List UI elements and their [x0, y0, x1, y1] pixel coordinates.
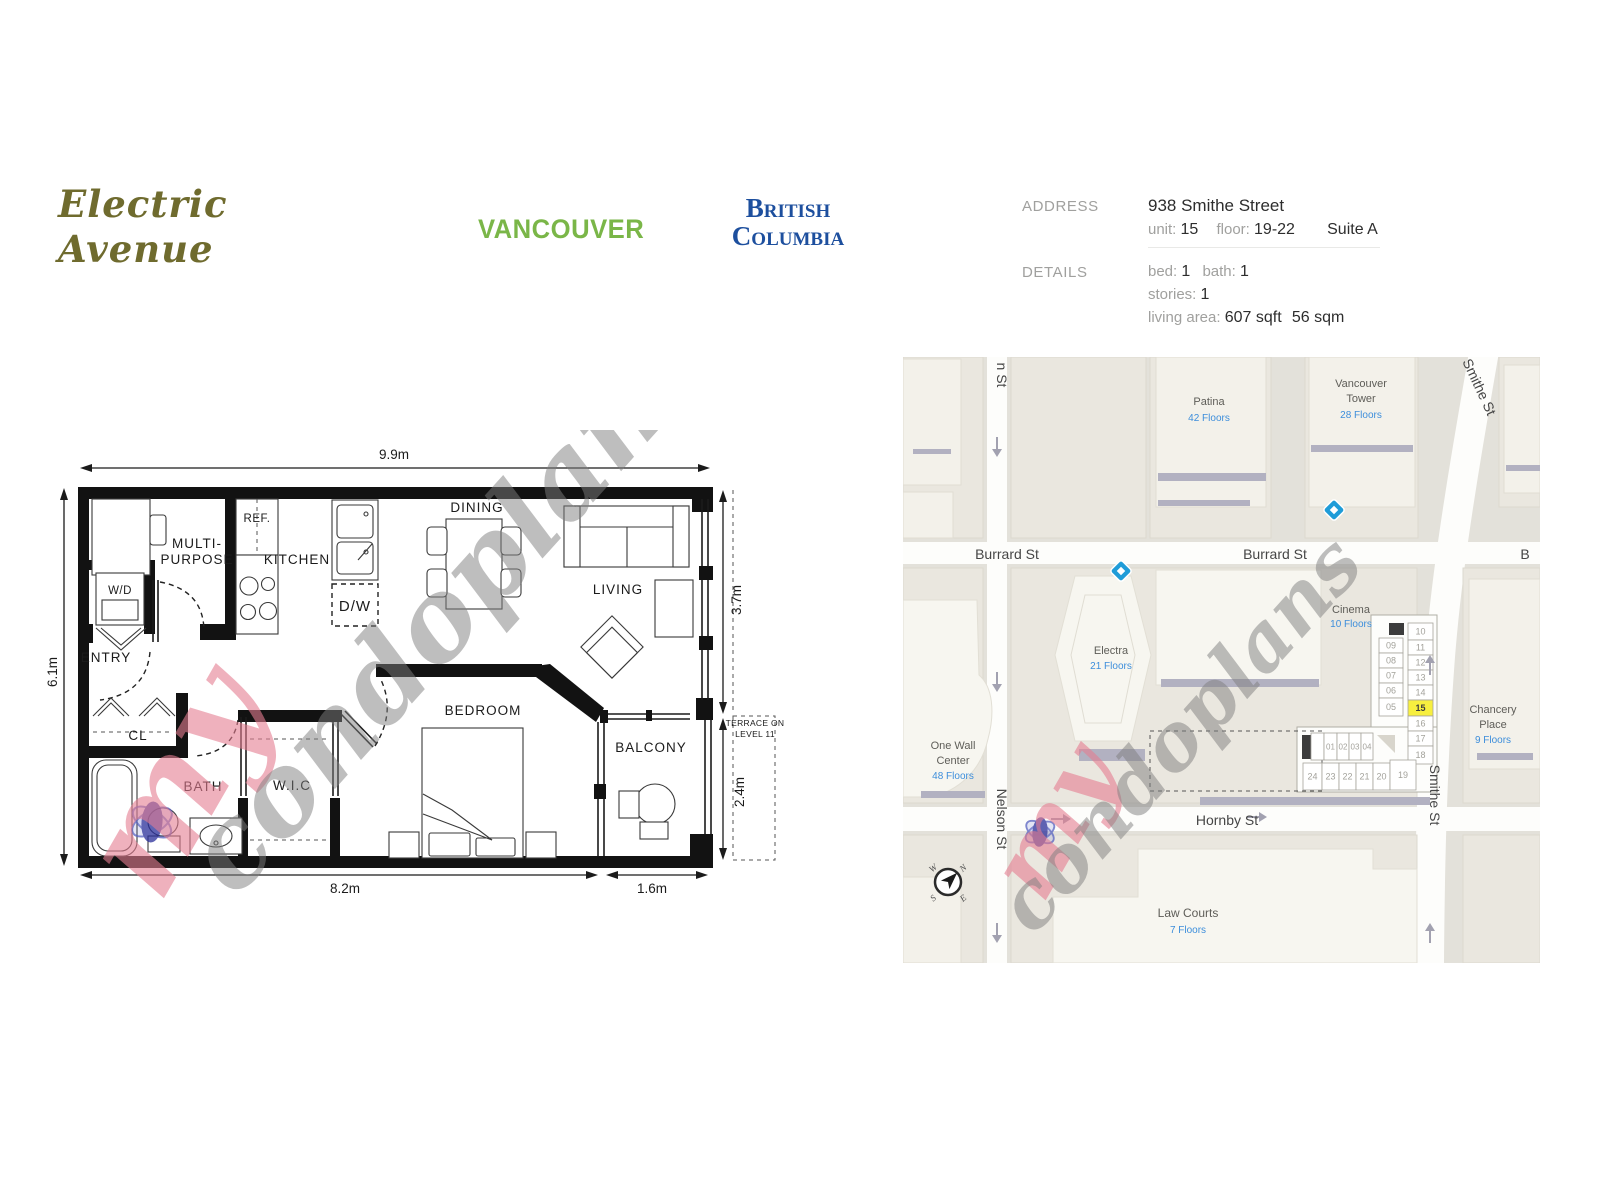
address-label: ADDRESS: [1022, 196, 1148, 248]
site-map: 1011121314151617180908070605010203042423…: [903, 357, 1540, 963]
desk: [92, 499, 150, 575]
unit-floor-line: unit: 15 floor: 19-22 Suite A: [1148, 220, 1380, 239]
unit-number-02: 02: [1339, 743, 1348, 752]
unit-number-03: 03: [1351, 743, 1360, 752]
patio-chair: [619, 791, 639, 818]
unit-number-13: 13: [1415, 673, 1425, 683]
province-line1: British: [718, 194, 858, 222]
label-multi-1: MULTI-: [172, 536, 222, 551]
unit-number-04: 04: [1363, 743, 1372, 752]
one-wall-center-floors: 48 Floors: [932, 771, 974, 782]
province-label: British Columbia: [718, 194, 858, 251]
floor-value: 19-22: [1254, 221, 1295, 238]
law-courts-floors: 7 Floors: [1170, 925, 1206, 936]
project-title: Electric Avenue: [58, 182, 228, 272]
dim-bottom-balcony: 1.6m: [637, 881, 667, 896]
dim-left: 6.1m: [45, 657, 60, 687]
floor-plan: 9.9m 6.1m 3.7m 2.4m 8.2m 1.6m TERRACE ON…: [40, 430, 800, 910]
terrace-note-line2: LEVEL 11: [735, 729, 775, 739]
divider: [1148, 247, 1380, 248]
dim-right-upper: 3.7m: [729, 585, 744, 615]
unit-number-17: 17: [1415, 734, 1425, 744]
unit-number-08: 08: [1386, 656, 1396, 666]
chancery-place-floors: 9 Floors: [1475, 735, 1511, 746]
stories-line: stories: 1: [1148, 285, 1344, 304]
province-line2: Columbia: [718, 222, 858, 250]
project-title-line1: Electric: [58, 182, 228, 227]
street-burrard-partial: B: [1520, 546, 1529, 562]
unit-number-18: 18: [1415, 750, 1425, 760]
vancouver-tower-floors: 28 Floors: [1340, 410, 1382, 421]
terrace-note-line1: TERRACE ON: [726, 718, 785, 728]
street-burrard-1: Burrard St: [975, 546, 1039, 562]
bed-key: bed:: [1148, 263, 1177, 280]
electra-name: Electra: [1094, 645, 1129, 657]
floor-key: floor:: [1217, 221, 1250, 238]
condo-plan-sheet: Electric Avenue VANCOUVER British Columb…: [0, 0, 1600, 1200]
unit-number-11: 11: [1416, 643, 1425, 653]
vancouver-tower-name-2: Tower: [1346, 393, 1376, 405]
one-wall-center-name-2: Center: [936, 755, 969, 767]
one-wall-center-name-1: One Wall: [931, 740, 976, 752]
unit-number-06: 06: [1386, 686, 1396, 696]
stories-key: stories:: [1148, 286, 1196, 303]
unit-number-16: 16: [1415, 719, 1425, 729]
unit-number-10: 10: [1415, 627, 1425, 637]
unit-number-12: 12: [1415, 658, 1425, 668]
area-line: living area: 607 sqft 56 sqm: [1148, 308, 1344, 327]
unit-number-20: 20: [1376, 772, 1386, 782]
area-sqft: 607 sqft: [1225, 309, 1282, 326]
street-nelson-partial: n St: [994, 363, 1010, 388]
bed-bath-line: bed: 1 bath: 1: [1148, 262, 1344, 281]
bath-key: bath:: [1202, 263, 1235, 280]
nightstand: [526, 832, 556, 858]
dim-bottom-main: 8.2m: [330, 881, 360, 896]
unit-number-24: 24: [1307, 772, 1317, 782]
unit-key: unit:: [1148, 221, 1176, 238]
dim-top: 9.9m: [379, 447, 409, 462]
unit-number-22: 22: [1342, 772, 1352, 782]
patio-table: [635, 784, 675, 824]
label-living: LIVING: [593, 582, 643, 597]
chancery-place-name-1: Chancery: [1469, 704, 1517, 716]
bath-value: 1: [1240, 263, 1249, 280]
patina-name: Patina: [1193, 396, 1225, 408]
kitchen-island: [332, 500, 378, 580]
unit-number-14: 14: [1415, 688, 1425, 698]
city-label: VANCOUVER: [478, 214, 644, 245]
suite-value: Suite A: [1327, 221, 1378, 238]
law-courts-name: Law Courts: [1158, 906, 1219, 920]
dim-right-lower: 2.4m: [732, 777, 747, 807]
unit-number-15: 15: [1415, 703, 1425, 713]
info-panel: ADDRESS 938 Smithe Street unit: 15 floor…: [1022, 196, 1380, 341]
address-value: 938 Smithe Street: [1148, 196, 1380, 216]
electra-floors: 21 Floors: [1090, 661, 1132, 672]
side-table: [655, 580, 693, 637]
details-label: DETAILS: [1022, 262, 1148, 327]
street-hornby: Hornby St: [1196, 812, 1258, 828]
nightstand: [389, 832, 419, 858]
bed-value: 1: [1181, 263, 1190, 280]
unit-number-05: 05: [1386, 702, 1396, 712]
street-smithe-right: Smithe St: [1427, 765, 1443, 826]
label-entry: ENTRY: [81, 650, 132, 665]
unit-number-09: 09: [1386, 641, 1396, 651]
pillow: [429, 833, 470, 856]
stories-value: 1: [1201, 286, 1210, 303]
label-balcony: BALCONY: [615, 740, 687, 755]
unit-number-01: 01: [1326, 743, 1335, 752]
chancery-place-name-2: Place: [1479, 719, 1507, 731]
unit-number-21: 21: [1359, 772, 1369, 782]
label-ref: REF.: [244, 513, 271, 525]
patio-chair: [640, 822, 668, 839]
area-sqm: 56 sqm: [1292, 309, 1344, 326]
label-wd: W/D: [108, 585, 132, 597]
accent-chair: [581, 616, 643, 678]
area-key: living area:: [1148, 309, 1221, 326]
unit-number-19: 19: [1398, 770, 1408, 780]
patina-floors: 42 Floors: [1188, 413, 1230, 424]
unit-number-23: 23: [1325, 772, 1335, 782]
project-title-line2: Avenue: [58, 227, 228, 272]
desk-chair: [150, 515, 166, 545]
label-multi-2: PURPOSE: [160, 552, 233, 567]
details-row: DETAILS bed: 1 bath: 1 stories: 1 living…: [1022, 262, 1380, 327]
pillow: [476, 838, 515, 856]
unit-number-07: 07: [1386, 671, 1396, 681]
unit-value: 15: [1181, 221, 1199, 238]
label-bedroom: BEDROOM: [445, 703, 522, 718]
label-kitchen: KITCHEN: [264, 552, 330, 567]
vancouver-tower-name-1: Vancouver: [1335, 378, 1387, 390]
address-row: ADDRESS 938 Smithe Street unit: 15 floor…: [1022, 196, 1380, 248]
